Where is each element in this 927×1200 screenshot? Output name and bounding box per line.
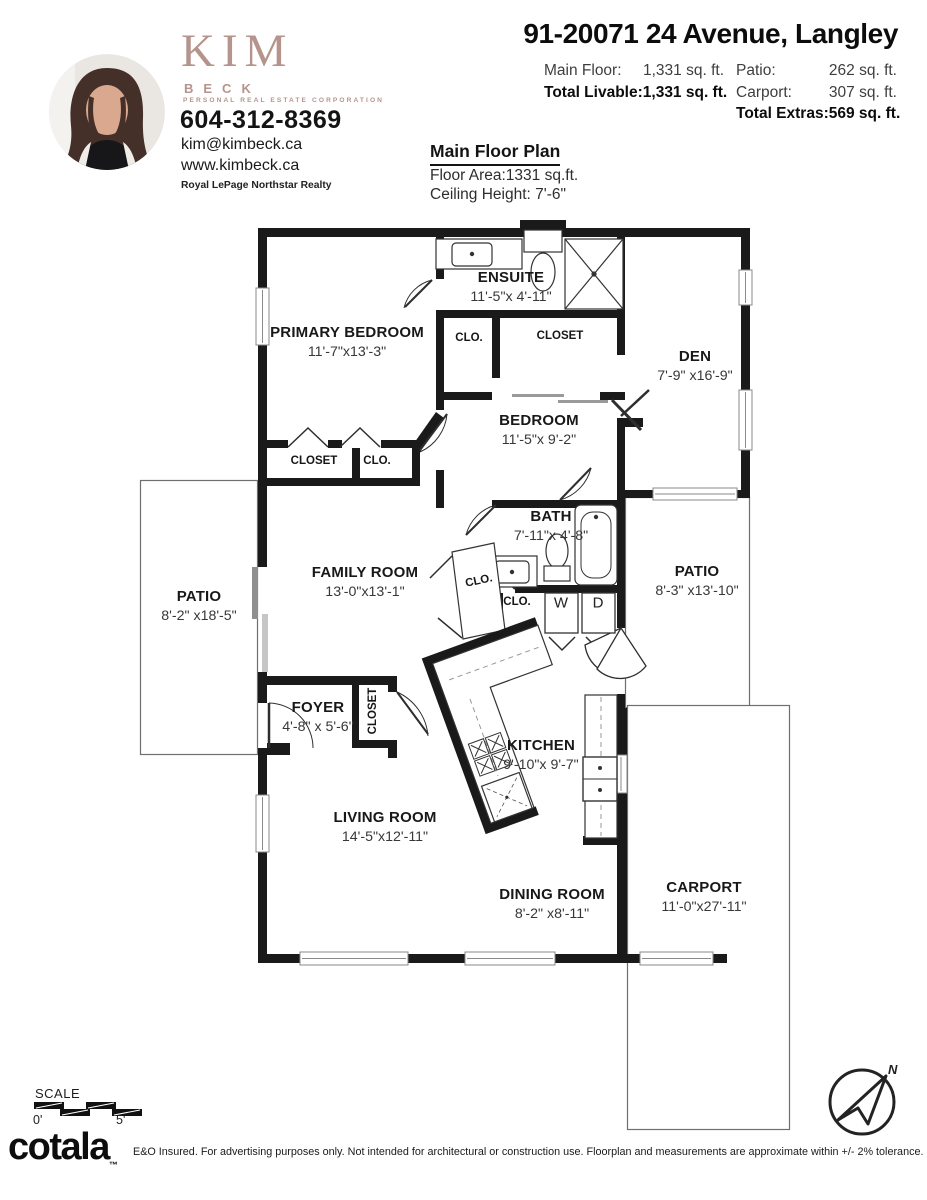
compass-icon: N xyxy=(818,1054,908,1144)
disclaimer-text: E&O Insured. For advertising purposes on… xyxy=(133,1146,923,1158)
room-label-primary-bedroom: PRIMARY BEDROOM11'-7"x13'-3" xyxy=(270,323,424,361)
room-name: DINING ROOM xyxy=(499,885,605,905)
room-dimensions: 8'-2" x8'-11" xyxy=(499,905,605,923)
room-name: KITCHEN xyxy=(503,736,578,756)
room-name: CARPORT xyxy=(661,878,746,898)
room-label-foyer: FOYER4'-8" x 5'-6" xyxy=(282,698,353,736)
room-name: LIVING ROOM xyxy=(333,808,436,828)
room-name: BEDROOM xyxy=(499,411,579,431)
closet-label-closet-foyer: CLOSET xyxy=(367,688,379,735)
trademark-symbol: ™ xyxy=(109,1160,118,1170)
room-name: PATIO xyxy=(161,587,236,607)
closet-label-dryer: D xyxy=(593,595,604,612)
room-dimensions: 13'-0"x13'-1" xyxy=(312,583,418,601)
closet-label-clo-hall: CLO. xyxy=(455,332,482,344)
room-dimensions: 7'-9" x16'-9" xyxy=(657,367,732,385)
closet-label-closet-hall: CLOSET xyxy=(537,330,584,342)
closet-label-closet-primary: CLOSET xyxy=(291,455,338,467)
scale-bar xyxy=(32,1100,152,1124)
patio-right-outline xyxy=(626,498,750,708)
room-label-living-room: LIVING ROOM14'-5"x12'-11" xyxy=(333,808,436,846)
room-dimensions: 9'-10"x 9'-7" xyxy=(503,756,578,774)
room-dimensions: 11'-0"x27'-11" xyxy=(661,898,746,916)
room-dimensions: 11'-5"x 9'-2" xyxy=(499,431,579,449)
room-label-carport: CARPORT11'-0"x27'-11" xyxy=(661,878,746,916)
room-label-kitchen: KITCHEN9'-10"x 9'-7" xyxy=(503,736,578,774)
cotala-logo-text: cotala xyxy=(8,1126,109,1168)
room-label-patio-right: PATIO8'-3" x13'-10" xyxy=(655,562,738,600)
scale-start: 0' xyxy=(33,1113,42,1127)
carport-outline xyxy=(628,706,790,1130)
floorplan-page: KIM BECK PERSONAL REAL ESTATE CORPORATIO… xyxy=(0,0,927,1200)
closet-rods xyxy=(512,394,608,403)
closet-label-washer: W xyxy=(554,595,568,612)
floorplan-drawing xyxy=(0,0,927,1200)
room-name: PATIO xyxy=(655,562,738,582)
scale-end: 5' xyxy=(116,1113,125,1127)
room-dimensions: 4'-8" x 5'-6" xyxy=(282,718,353,736)
cotala-logo: cotala™ xyxy=(8,1126,118,1169)
room-dimensions: 11'-5"x 4'-11" xyxy=(470,288,551,306)
room-label-bedroom: BEDROOM11'-5"x 9'-2" xyxy=(499,411,579,449)
scale-label: SCALE xyxy=(35,1086,80,1101)
room-name: FAMILY ROOM xyxy=(312,563,418,583)
room-dimensions: 11'-7"x13'-3" xyxy=(270,343,424,361)
room-dimensions: 7'-11"x 4'-8" xyxy=(514,527,588,545)
room-dimensions: 8'-3" x13'-10" xyxy=(655,582,738,600)
kitchen-counter xyxy=(428,621,598,828)
closet-label-clo-primary: CLO. xyxy=(363,455,390,467)
room-dimensions: 8'-2" x18'-5" xyxy=(161,607,236,625)
room-label-den: DEN7'-9" x16'-9" xyxy=(657,347,732,385)
room-name: PRIMARY BEDROOM xyxy=(270,323,424,343)
room-name: BATH xyxy=(514,507,588,527)
closet-label-clo-laundry: CLO. xyxy=(503,596,530,608)
room-label-bath: BATH7'-11"x 4'-8" xyxy=(514,507,588,545)
compass-north-label: N xyxy=(888,1062,898,1077)
room-name: ENSUITE xyxy=(470,268,551,288)
kitchen-fridge-counter xyxy=(583,695,617,838)
room-label-family-room: FAMILY ROOM13'-0"x13'-1" xyxy=(312,563,418,601)
room-name: DEN xyxy=(657,347,732,367)
room-label-patio-left: PATIO8'-2" x18'-5" xyxy=(161,587,236,625)
room-label-ensuite: ENSUITE11'-5"x 4'-11" xyxy=(470,268,551,306)
room-name: FOYER xyxy=(282,698,353,718)
room-dimensions: 14'-5"x12'-11" xyxy=(333,828,436,846)
room-label-dining-room: DINING ROOM8'-2" x8'-11" xyxy=(499,885,605,923)
